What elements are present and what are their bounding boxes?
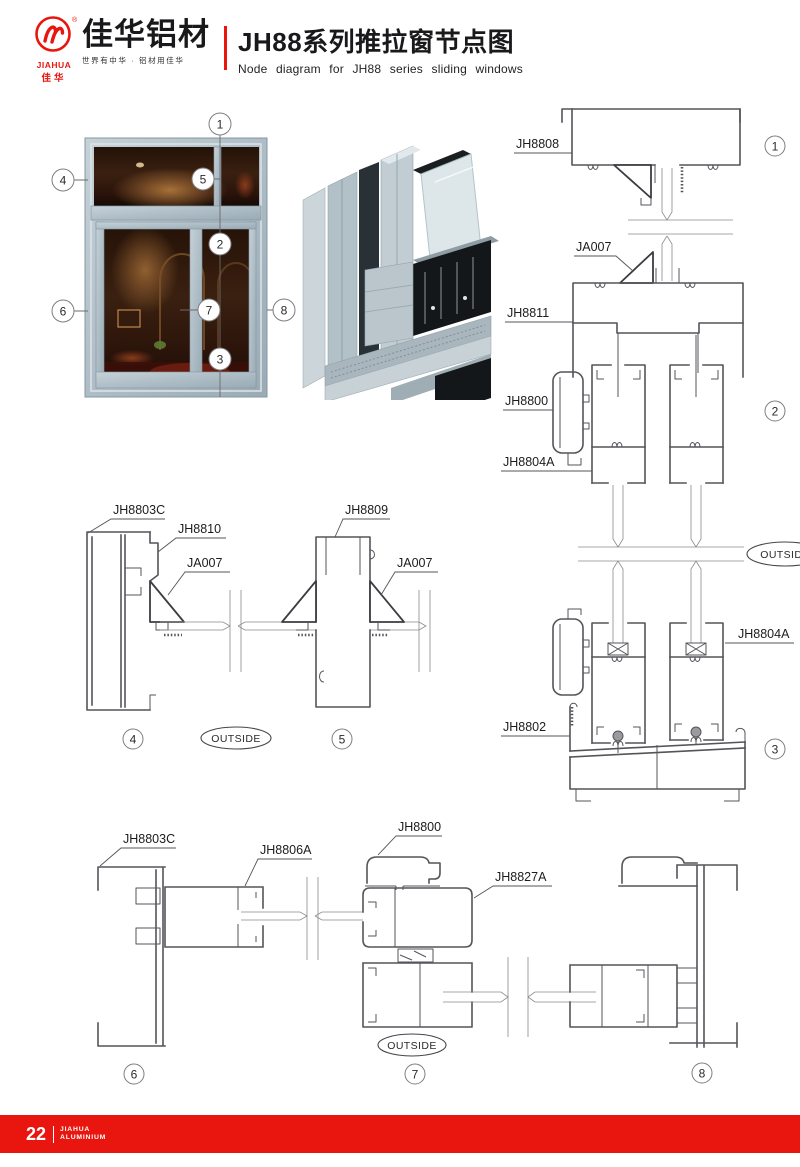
svg-text:JH8811: JH8811	[507, 306, 549, 320]
svg-text:5: 5	[339, 733, 346, 747]
overview-callout-8: 8	[273, 299, 295, 321]
page-title: JH88系列推拉窗节点图	[238, 22, 523, 59]
section-callout-6: 6	[124, 1064, 144, 1084]
svg-text:JH8802: JH8802	[503, 720, 546, 734]
label-ja007-mid-right: JA007	[381, 556, 438, 595]
label-ja007-mid-left: JA007	[168, 556, 230, 595]
horizontal-section-diagram-4-5: JH8803C JH8810 JA007 JH8809 JA007 4 OUTS…	[78, 495, 440, 757]
label-jh8800-bottom: JH8800	[378, 820, 442, 855]
wall-picture	[118, 310, 140, 327]
overview-callout-7: 7	[198, 299, 220, 321]
svg-text:OUTSIDE: OUTSIDE	[211, 733, 260, 745]
footer-divider	[53, 1126, 54, 1143]
bottom-rail	[96, 372, 256, 388]
svg-text:1: 1	[217, 118, 224, 132]
brand-title: 佳华铝材	[82, 18, 214, 52]
svg-text:JH8806A: JH8806A	[260, 843, 312, 857]
window-overview-illustration: 1 4 5 2 6 7 8 3	[40, 110, 300, 410]
section-callout-7: 7	[405, 1064, 425, 1084]
label-jh8803c-bottom: JH8803C	[100, 832, 176, 866]
overview-callout-3: 3	[209, 348, 231, 370]
page-header: ® JIAHUA 佳华 佳华铝材 世界有中华 · 铝材用佳华 JH88系列推拉窗…	[0, 0, 800, 92]
profile-3d-render	[295, 140, 515, 400]
outside-tag-mid: OUTSIDE	[201, 727, 271, 749]
section-callout-1: 1	[765, 136, 785, 156]
header-divider	[224, 26, 227, 70]
horizontal-section-diagram-6-7-8: JH8803C JH8806A 6 JH8800 JH8827A	[88, 818, 740, 1090]
svg-text:8: 8	[699, 1067, 706, 1081]
svg-text:5: 5	[200, 173, 207, 187]
section-callout-2: 2	[765, 401, 785, 421]
overview-callout-1: 1	[209, 113, 231, 135]
svg-text:JA007: JA007	[397, 556, 432, 570]
svg-text:3: 3	[217, 353, 224, 367]
overview-callout-5: 5	[192, 168, 214, 190]
jiahua-emblem-icon: ®	[31, 14, 77, 54]
outside-tag-bottom: OUTSIDE	[378, 1034, 446, 1056]
section-callout-8: 8	[692, 1063, 712, 1083]
section-callout-3: 3	[765, 739, 785, 759]
jiahua-logo: ® JIAHUA 佳华	[30, 14, 78, 76]
svg-text:8: 8	[281, 304, 288, 318]
svg-text:2: 2	[217, 238, 224, 252]
svg-text:7: 7	[206, 304, 213, 318]
svg-text:2: 2	[772, 405, 779, 419]
svg-text:JH8809: JH8809	[345, 503, 388, 517]
footer-brand-line2: ALUMINIUM	[60, 1134, 106, 1142]
label-jh8800-right-column: JH8800	[503, 394, 553, 410]
label-jh8808: JH8808	[514, 137, 572, 153]
page-number: 22	[26, 1124, 46, 1145]
svg-text:JH8810: JH8810	[178, 522, 221, 536]
catalog-page: ® JIAHUA 佳华 佳华铝材 世界有中华 · 铝材用佳华 JH88系列推拉窗…	[0, 0, 800, 1167]
svg-text:6: 6	[131, 1068, 138, 1082]
svg-text:JH8800: JH8800	[505, 394, 548, 408]
outside-tag-right-column: OUTSIDE	[747, 542, 800, 566]
label-jh8806a: JH8806A	[245, 843, 312, 886]
label-jh8810: JH8810	[158, 522, 226, 552]
label-jh8811: JH8811	[505, 306, 573, 322]
registered-mark: ®	[72, 16, 77, 24]
svg-text:JH8804A: JH8804A	[503, 455, 555, 469]
svg-text:JA007: JA007	[576, 240, 611, 254]
overview-callout-2: 2	[209, 233, 231, 255]
logo-brand-cn: 佳华	[30, 70, 78, 84]
label-jh8804a-right: JH8804A	[725, 627, 794, 643]
page-title-block: JH88系列推拉窗节点图 Node diagram for JH88 serie…	[238, 22, 523, 76]
svg-text:7: 7	[412, 1068, 419, 1082]
section-callout-5: 5	[332, 729, 352, 749]
svg-text:1: 1	[772, 140, 779, 154]
page-subtitle: Node diagram for JH88 series sliding win…	[238, 62, 523, 76]
overview-callout-6: 6	[52, 300, 74, 322]
logo-brand-en: JIAHUA	[30, 60, 78, 70]
svg-text:6: 6	[60, 305, 67, 319]
svg-text:JH8827A: JH8827A	[495, 870, 547, 884]
label-jh8827a: JH8827A	[474, 870, 552, 898]
label-ja007-right-column: JA007	[574, 240, 633, 271]
svg-text:JH8803C: JH8803C	[123, 832, 175, 846]
svg-text:JH8808: JH8808	[516, 137, 559, 151]
svg-text:JH8804A: JH8804A	[738, 627, 790, 641]
brand-tagline: 世界有中华 · 铝材用佳华	[82, 55, 214, 66]
vertical-section-diagram: JH8808 1 JA007 JH8811	[498, 95, 800, 810]
svg-text:JH8803C: JH8803C	[113, 503, 165, 517]
footer-brand-line1: JIAHUA	[60, 1126, 106, 1134]
page-footer: 22 JIAHUA ALUMINIUM	[0, 1115, 800, 1153]
svg-text:4: 4	[60, 174, 67, 188]
svg-text:3: 3	[772, 743, 779, 757]
svg-text:JH8800: JH8800	[398, 820, 441, 834]
section-callout-4: 4	[123, 729, 143, 749]
footer-brand: JIAHUA ALUMINIUM	[60, 1126, 106, 1142]
svg-text:JA007: JA007	[187, 556, 222, 570]
label-jh8802: JH8802	[501, 720, 570, 736]
label-jh8804a-left: JH8804A	[501, 455, 592, 471]
label-jh8803c-mid: JH8803C	[88, 503, 165, 533]
transom-rail	[91, 206, 261, 220]
svg-text:4: 4	[130, 733, 137, 747]
svg-text:OUTSIDE: OUTSIDE	[760, 549, 800, 561]
svg-text:OUTSIDE: OUTSIDE	[387, 1040, 436, 1052]
overview-callout-4: 4	[52, 169, 74, 191]
brand-block: 佳华铝材 世界有中华 · 铝材用佳华	[82, 18, 214, 66]
label-jh8809: JH8809	[335, 503, 390, 537]
